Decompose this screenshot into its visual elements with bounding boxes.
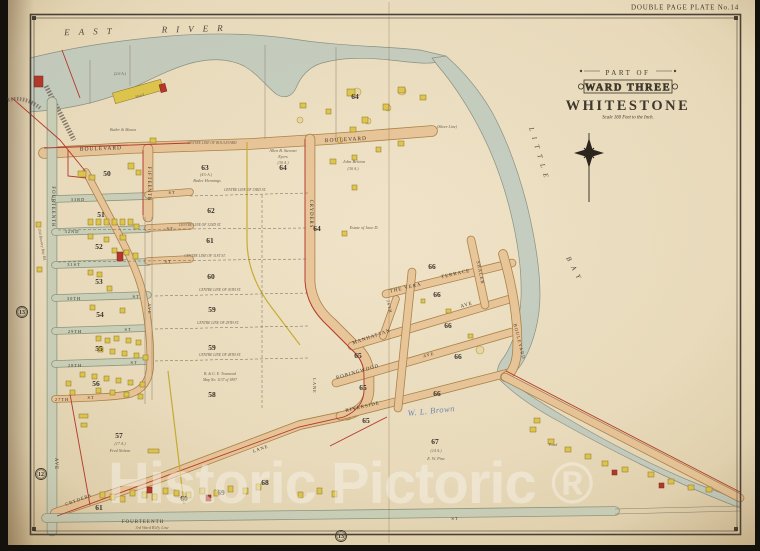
frame-building-footprint bbox=[66, 381, 71, 386]
frame-building-footprint bbox=[112, 248, 117, 253]
block-number-label: 66 bbox=[454, 352, 462, 361]
street-label: AVE bbox=[147, 303, 152, 314]
block-number-label: 62 bbox=[207, 206, 215, 215]
block-number-label: 52 bbox=[95, 242, 103, 251]
street-label: 33RD bbox=[71, 197, 86, 202]
tree-circle bbox=[476, 346, 484, 354]
frame-building-footprint bbox=[80, 372, 85, 377]
street-label: FIFTEENTH bbox=[146, 167, 151, 202]
block-number-label: 66 bbox=[433, 290, 441, 299]
block-number-label: 53 bbox=[95, 277, 103, 286]
block-number-label: 50 bbox=[103, 169, 111, 178]
map-note: CENTRE LINE OF BOULEVARD bbox=[187, 141, 237, 145]
frame-building-footprint bbox=[124, 392, 129, 397]
frame-building-footprint bbox=[330, 159, 336, 164]
frame-building-footprint bbox=[120, 235, 126, 240]
map-note: Map No. 1137 of 1897 bbox=[202, 378, 238, 382]
frame-building-footprint bbox=[81, 423, 87, 427]
frame-building-footprint bbox=[128, 219, 133, 225]
street-label: 30TH bbox=[67, 296, 81, 301]
frame-building-footprint bbox=[70, 390, 75, 395]
block-number-label: 64 bbox=[351, 92, 359, 101]
frame-building-footprint bbox=[107, 286, 112, 291]
frame-building-footprint bbox=[134, 224, 139, 229]
block-number-label: 65 bbox=[362, 416, 370, 425]
frame-building-footprint bbox=[110, 390, 115, 395]
frame-building-footprint bbox=[468, 334, 473, 338]
frame-building-footprint bbox=[420, 95, 426, 100]
map-note: Estate of Jane D. bbox=[349, 225, 379, 230]
frame-building-footprint bbox=[100, 492, 105, 498]
frame-building-footprint bbox=[136, 340, 141, 345]
street-label: CRYDERS bbox=[308, 200, 313, 229]
frame-building-footprint bbox=[96, 388, 101, 393]
street-label: 31ST bbox=[67, 262, 81, 267]
block-number-label: 66 bbox=[444, 321, 452, 330]
frame-building-footprint bbox=[622, 467, 628, 472]
block-number-label: 55 bbox=[95, 344, 103, 353]
brick-building-footprint bbox=[34, 76, 43, 87]
map-note: (30 A.) bbox=[347, 166, 359, 171]
map-note: (Shore Line) bbox=[437, 124, 458, 129]
street-label: 28TH bbox=[68, 363, 82, 368]
map-note: Butler Hennings bbox=[193, 178, 221, 183]
title-scale: Scale 160 Feet to the Inch. bbox=[602, 116, 653, 121]
street-label: 29TH bbox=[68, 329, 82, 334]
map-note: Pond bbox=[548, 442, 558, 447]
map-canvas: BOULEVARDBOULEVARDFOURTEENTHAVEFIFTEENTH… bbox=[0, 0, 760, 551]
frame-building-footprint bbox=[668, 479, 674, 484]
frame-building-footprint bbox=[79, 414, 88, 418]
frame-building-footprint bbox=[706, 487, 712, 492]
street-label: FOURTEENTH bbox=[50, 186, 55, 227]
map-note: CENTRE LINE OF 30TH ST. bbox=[199, 288, 242, 292]
frame-building-footprint bbox=[446, 309, 451, 313]
frame-building-footprint bbox=[350, 127, 356, 132]
frame-building-footprint bbox=[114, 336, 119, 341]
map-note: CENTRE LINE OF 31ST ST. bbox=[184, 254, 226, 258]
frame-building-footprint bbox=[37, 267, 42, 272]
frame-building-footprint bbox=[116, 378, 121, 383]
street-label: 32ND bbox=[65, 229, 80, 234]
svg-text:12: 12 bbox=[38, 472, 44, 478]
brick-building-footprint bbox=[117, 252, 123, 261]
block-number-label: 66 bbox=[433, 389, 441, 398]
svg-text:13: 13 bbox=[19, 310, 25, 316]
block-number-label: 65 bbox=[359, 383, 367, 392]
frame-building-footprint bbox=[120, 308, 125, 313]
frame-building-footprint bbox=[104, 237, 109, 242]
block-number-label: 61 bbox=[95, 503, 103, 512]
frame-building-footprint bbox=[112, 219, 117, 225]
frame-building-footprint bbox=[122, 351, 127, 356]
block-number-label: 58 bbox=[208, 390, 216, 399]
street-label: 27TH bbox=[55, 397, 69, 402]
block-number-label: 59 bbox=[208, 343, 216, 352]
frame-building-footprint bbox=[138, 394, 143, 399]
plate-number-label: DOUBLE PAGE PLATE No.14 bbox=[631, 4, 739, 12]
map-note: Allen B. Stewart bbox=[268, 148, 297, 153]
frame-building-footprint bbox=[89, 175, 95, 180]
street-label: ST bbox=[132, 294, 139, 299]
frame-building-footprint bbox=[134, 353, 139, 358]
frame-building-footprint bbox=[90, 305, 95, 310]
frame-building-footprint bbox=[688, 485, 694, 490]
frame-building-footprint bbox=[398, 141, 404, 146]
frame-building-footprint bbox=[124, 250, 129, 255]
frame-building-footprint bbox=[88, 234, 93, 239]
frame-building-footprint bbox=[398, 87, 405, 93]
map-note: (2.6 A.) bbox=[114, 71, 127, 76]
brick-building-footprint bbox=[612, 470, 617, 475]
title-part-of: PART OF bbox=[606, 69, 651, 77]
street-label: ST bbox=[166, 226, 173, 231]
street-label: ST bbox=[130, 360, 137, 365]
street-label: AVE bbox=[53, 458, 58, 470]
frame-building-footprint bbox=[143, 355, 148, 360]
block-number-label: 57 bbox=[115, 431, 123, 440]
map-note: CENTRE LINE OF 33RD ST. bbox=[224, 188, 267, 192]
frame-building-footprint bbox=[326, 109, 331, 114]
frame-building-footprint bbox=[421, 299, 425, 303]
map-note: 3rd Ward B'd'y Line bbox=[135, 525, 168, 530]
block-number-label: 64 bbox=[313, 224, 321, 233]
frame-building-footprint bbox=[352, 185, 357, 190]
frame-building-footprint bbox=[120, 219, 125, 225]
map-note: Butler & Mason bbox=[110, 127, 136, 132]
frame-building-footprint bbox=[300, 103, 306, 108]
block-number-label: 60 bbox=[207, 272, 215, 281]
street-label: LANE bbox=[312, 378, 317, 394]
street-label: ST bbox=[124, 327, 131, 332]
block-number-label: 54 bbox=[96, 310, 104, 319]
street-label: ST bbox=[168, 190, 175, 195]
block-number-label: 63 bbox=[201, 163, 209, 172]
frame-building-footprint bbox=[150, 138, 156, 143]
map-note: B. & G. E. Townsend bbox=[204, 372, 236, 376]
frame-building-footprint bbox=[104, 376, 109, 381]
frame-building-footprint bbox=[376, 147, 381, 152]
frame-building-footprint bbox=[128, 380, 133, 385]
frame-building-footprint bbox=[534, 418, 540, 423]
frame-building-footprint bbox=[96, 219, 101, 225]
frame-building-footprint bbox=[88, 219, 93, 225]
block-number-label: 67 bbox=[431, 437, 439, 446]
frame-building-footprint bbox=[96, 336, 101, 341]
street-label: ST bbox=[451, 516, 458, 521]
block-number-label: 56 bbox=[92, 379, 100, 388]
frame-building-footprint bbox=[126, 338, 131, 343]
map-note: (17 A.) bbox=[114, 441, 126, 446]
map-note: John Britton bbox=[343, 159, 366, 164]
block-number-label: 59 bbox=[208, 305, 216, 314]
watermark-text: Historic Pictoric ® bbox=[108, 451, 593, 516]
frame-building-footprint bbox=[104, 219, 109, 225]
frame-building-footprint bbox=[602, 461, 608, 466]
map-note: (4½ A.) bbox=[200, 172, 213, 177]
frame-building-footprint bbox=[36, 222, 41, 227]
frame-building-footprint bbox=[530, 427, 536, 432]
brick-building-footprint bbox=[659, 483, 664, 488]
frame-building-footprint bbox=[78, 171, 86, 177]
frame-building-footprint bbox=[648, 472, 654, 477]
title-place: WHITESTONE bbox=[566, 98, 691, 114]
street-label: ST bbox=[164, 259, 171, 264]
map-note: CENTRE LINE OF 28TH ST. bbox=[199, 353, 242, 357]
map-note: Eyers bbox=[277, 154, 288, 159]
frame-building-footprint bbox=[342, 231, 347, 236]
frame-building-footprint bbox=[362, 117, 368, 123]
block-number-label: 61 bbox=[206, 236, 214, 245]
frame-building-footprint bbox=[110, 349, 115, 354]
block-number-label: 51 bbox=[97, 210, 105, 219]
map-note: CENTRE LINE OF 29TH ST. bbox=[197, 321, 240, 325]
block-number-label: 66 bbox=[428, 262, 436, 271]
block-number-label: 64 bbox=[279, 163, 287, 172]
map-note: CENTRE LINE OF 32ND ST. bbox=[179, 223, 222, 227]
title-ward: WARD THREE bbox=[585, 83, 671, 94]
atlas-plate-photo: BOULEVARDBOULEVARDFOURTEENTHAVEFIFTEENTH… bbox=[0, 0, 760, 551]
frame-building-footprint bbox=[105, 338, 110, 343]
frame-building-footprint bbox=[140, 382, 145, 387]
tree-circle bbox=[297, 117, 303, 123]
frame-building-footprint bbox=[133, 253, 138, 259]
block-number-label: 65 bbox=[354, 351, 362, 360]
frame-building-footprint bbox=[88, 270, 93, 275]
frame-building-footprint bbox=[136, 170, 141, 175]
frame-building-footprint bbox=[128, 163, 134, 169]
street-label: ST bbox=[87, 395, 94, 400]
